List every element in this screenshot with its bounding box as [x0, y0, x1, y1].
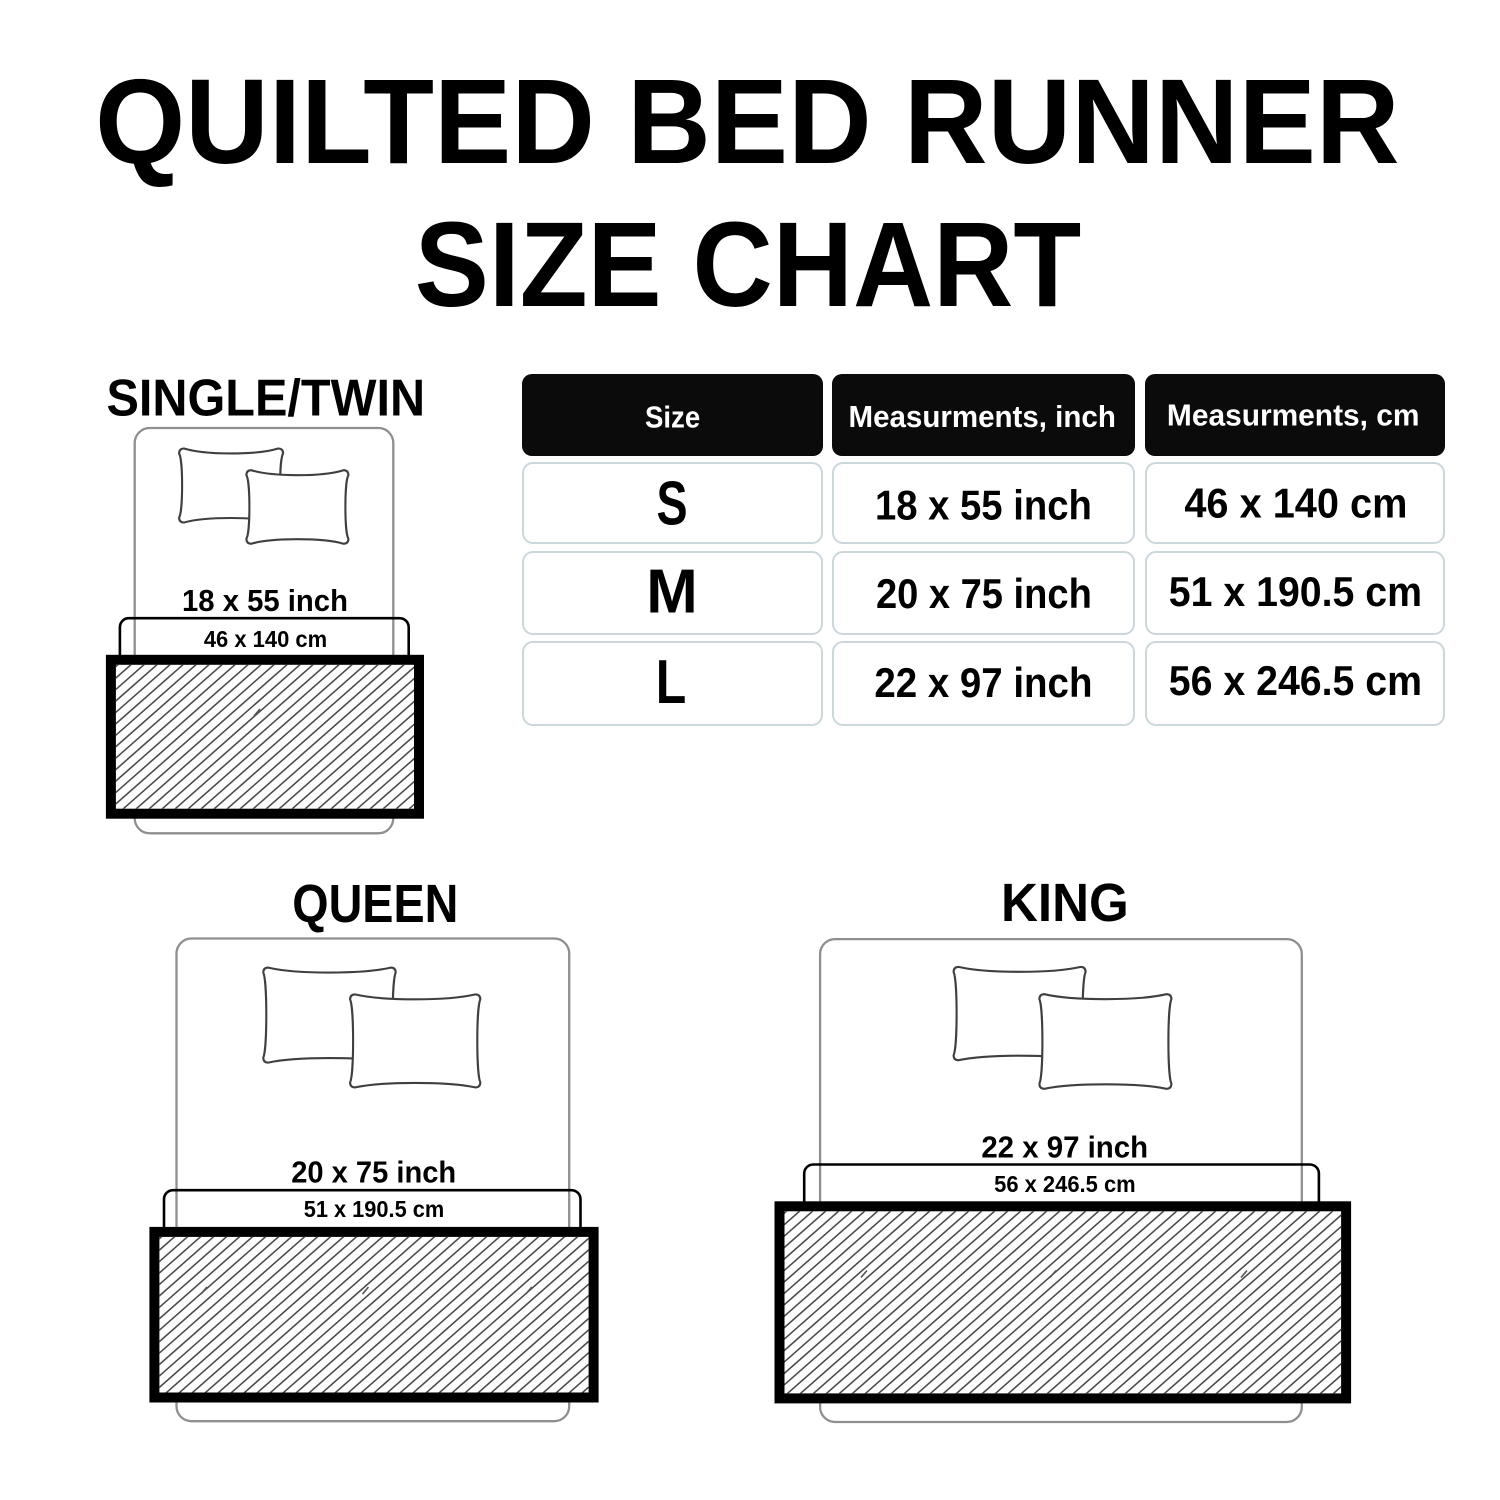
svg-text:KING: KING	[1001, 873, 1129, 933]
svg-text:SIZE CHART: SIZE CHART	[415, 196, 1081, 332]
svg-text:SINGLE/TWIN: SINGLE/TWIN	[106, 370, 425, 428]
svg-text:46 x 140 cm: 46 x 140 cm	[1184, 480, 1407, 527]
svg-text:22 x 97 inch: 22 x 97 inch	[874, 659, 1092, 706]
svg-text:Measurments, cm: Measurments, cm	[1167, 397, 1420, 432]
svg-text:51 x 190.5 cm: 51 x 190.5 cm	[304, 1196, 445, 1222]
svg-text:L: L	[656, 648, 687, 717]
svg-text:Measurments, inch: Measurments, inch	[849, 399, 1116, 434]
svg-text:18 x 55 inch: 18 x 55 inch	[875, 482, 1092, 529]
svg-text:56 x 246.5 cm: 56 x 246.5 cm	[1169, 657, 1422, 704]
svg-text:M: M	[646, 557, 698, 626]
svg-text:22 x 97 inch: 22 x 97 inch	[981, 1129, 1148, 1164]
svg-text:S: S	[656, 470, 687, 539]
svg-text:51 x 190.5 cm: 51 x 190.5 cm	[1169, 568, 1422, 615]
svg-text:QUEEN: QUEEN	[292, 874, 458, 934]
svg-text:20 x 75 inch: 20 x 75 inch	[291, 1155, 456, 1190]
svg-text:20 x 75 inch: 20 x 75 inch	[876, 570, 1092, 617]
svg-text:56 x 246.5 cm: 56 x 246.5 cm	[994, 1171, 1136, 1197]
svg-text:QUILTED BED RUNNER: QUILTED BED RUNNER	[95, 53, 1399, 189]
svg-text:46 x 140 cm: 46 x 140 cm	[204, 626, 327, 652]
svg-text:18 x 55 inch: 18 x 55 inch	[182, 583, 348, 618]
svg-text:Size: Size	[645, 400, 700, 435]
